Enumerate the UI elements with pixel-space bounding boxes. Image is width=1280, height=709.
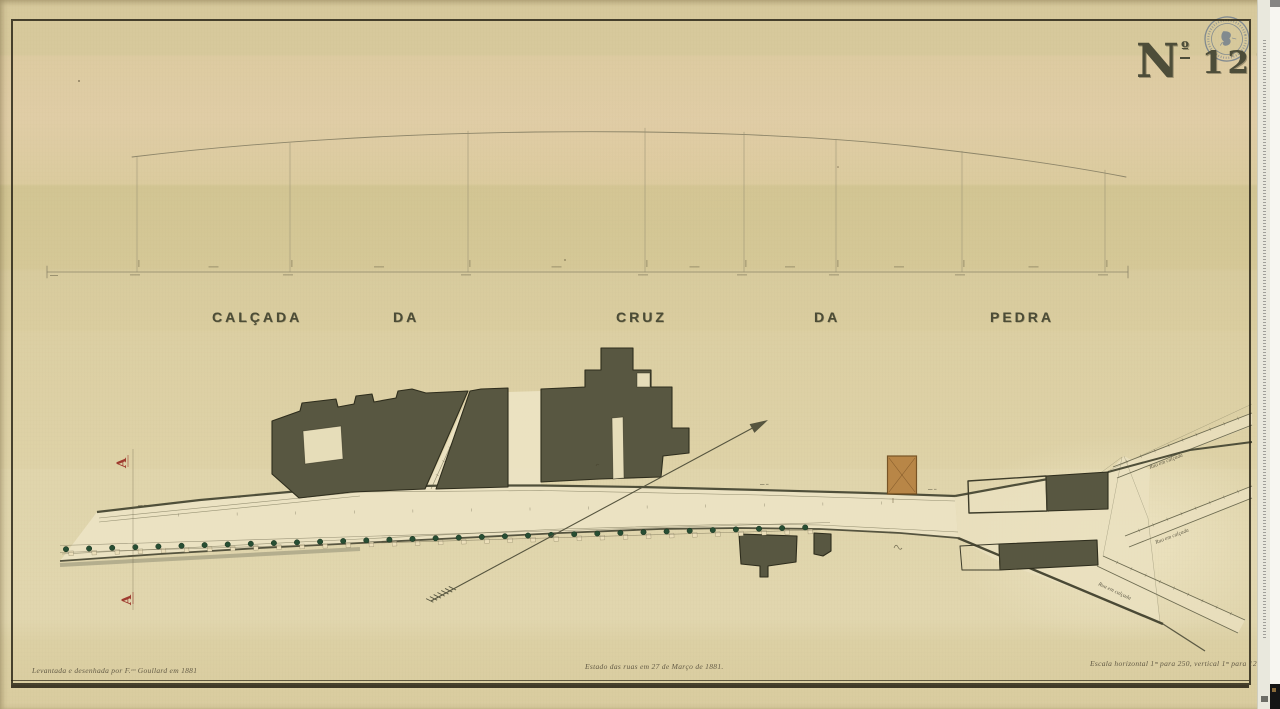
plan-number-prefix: N — [1136, 34, 1179, 89]
drawing-border-frame — [11, 19, 1251, 685]
title-word-pedra: PEDRA — [990, 309, 1054, 325]
scan-mark-gray — [1261, 696, 1268, 702]
scan-margin — [1270, 0, 1280, 709]
plan-number-ordinal: º — [1180, 38, 1190, 59]
caption-date: Estado das ruas em 27 de Março de 1881. — [585, 662, 724, 671]
title-word-da-2: DA — [814, 309, 840, 325]
title-word-da-1: DA — [393, 309, 419, 325]
frame-bottom-rule-thin — [11, 680, 1249, 681]
title-word-calcada: CALÇADA — [212, 309, 302, 325]
scan-color-chip — [1272, 688, 1276, 692]
caption-surveyor: Levantada e desenhada por F.ᶜᵒ Goullard … — [32, 666, 197, 675]
frame-bottom-rule-thick — [11, 685, 1249, 688]
archive-reference-strip — [1257, 0, 1271, 709]
scan-mark-top — [1270, 0, 1280, 7]
title-word-cruz: CRUZ — [616, 309, 667, 325]
scanned-plan-page: A A Rua em calçada Rua em calçada Rua em… — [0, 0, 1280, 709]
caption-scale: Escala horizontal 1ᵐ para 250, vertical … — [1090, 659, 1263, 668]
